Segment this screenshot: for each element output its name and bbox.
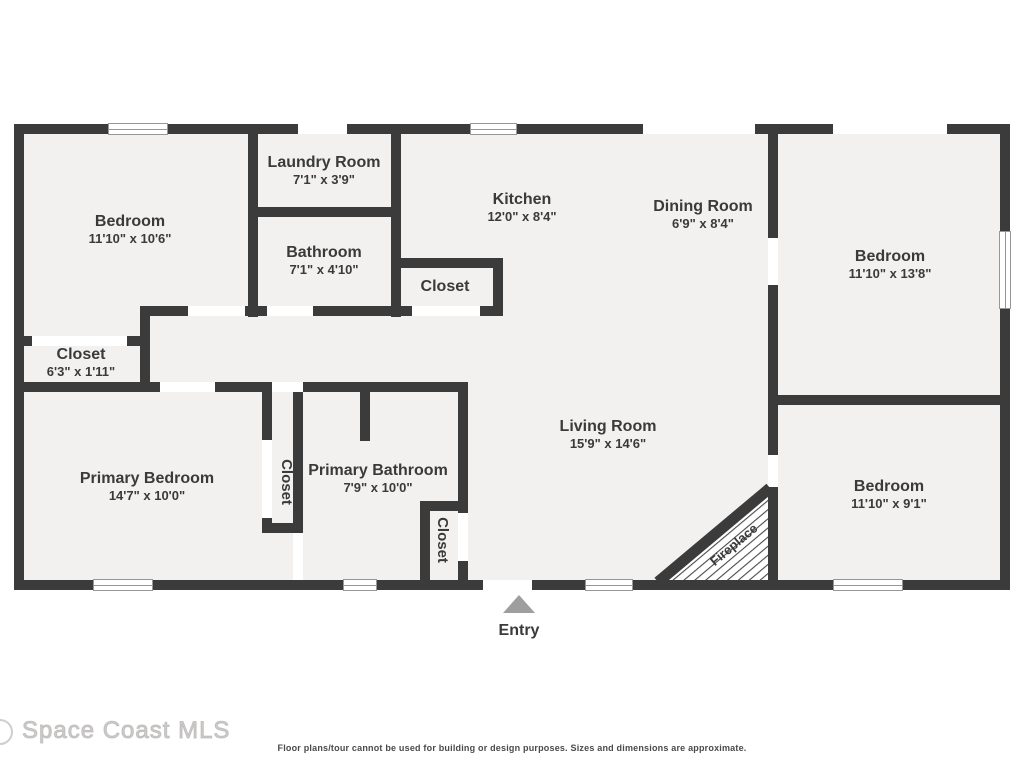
floor-plan-page: Bedroom 11'10" x 10'6" Laundry Room 7'1"… — [0, 0, 1024, 768]
window-bedroomBR-bottom — [833, 579, 903, 591]
wall-bedrooms-right-divider — [768, 395, 1000, 405]
room-name: Bedroom — [851, 478, 927, 496]
window-bedroomTR-right — [999, 231, 1011, 309]
room-dims: 7'1" x 4'10" — [286, 262, 362, 278]
door-closet-hall — [32, 336, 127, 346]
wall-closet-kitchen-right — [493, 268, 503, 316]
opening-laundry-top — [298, 124, 347, 134]
room-label-bedroom-bottom-right: Bedroom 11'10" x 9'1" — [851, 478, 927, 512]
disclaimer-text: Floor plans/tour cannot be used for buil… — [0, 743, 1024, 753]
room-name: Closet — [433, 517, 451, 563]
watermark: Space Coast MLS — [22, 717, 230, 745]
room-dims: 11'10" x 9'1" — [851, 496, 927, 512]
door-bedroomTL — [188, 306, 245, 316]
room-name: Primary Bathroom — [308, 462, 448, 480]
room-name: Kitchen — [487, 191, 556, 209]
room-name: Dining Room — [653, 198, 753, 216]
wall-laundry-bathroom — [258, 207, 391, 217]
door-primary-bedroom — [160, 382, 215, 392]
room-name: Bedroom — [89, 213, 172, 231]
window-bedroomTL-top — [108, 123, 168, 135]
window-living-bottom — [585, 579, 633, 591]
room-dims: 11'10" x 10'6" — [89, 231, 172, 247]
entry-arrow-icon — [503, 595, 535, 613]
wall-exterior-left — [14, 124, 24, 590]
room-name: Primary Bedroom — [80, 470, 214, 488]
door-entry — [483, 580, 532, 590]
room-dims: 7'1" x 3'9" — [268, 172, 381, 188]
room-label-kitchen: Kitchen 12'0" x 8'4" — [487, 191, 556, 225]
door-closet-primary-top — [272, 382, 303, 392]
wall-bathroom-stub — [360, 392, 370, 441]
room-label-laundry-room: Laundry Room 7'1" x 3'9" — [268, 154, 381, 188]
fireplace-hatch — [650, 480, 780, 592]
wall-hallway-bottom — [14, 382, 467, 392]
entry-label: Entry — [499, 622, 540, 640]
room-label-bathroom: Bathroom 7'1" x 4'10" — [286, 244, 362, 278]
wall-exterior-right — [1000, 124, 1010, 590]
door-bedroomTR — [768, 238, 778, 285]
room-dims: 6'9" x 8'4" — [653, 216, 753, 232]
door-closet-kitchen — [412, 306, 480, 316]
room-dims: 6'3" x 1'11" — [47, 364, 115, 380]
room-dims: 14'7" x 10'0" — [80, 488, 214, 504]
room-name: Closet — [421, 278, 470, 296]
room-label-living-room: Living Room 15'9" x 14'6" — [560, 418, 657, 452]
wall-closet-primary-bottom — [262, 523, 303, 533]
door-primary-bathroom — [293, 533, 303, 580]
room-label-closet-primary: Closet — [277, 459, 295, 505]
room-label-bedroom-top-right: Bedroom 11'10" x 13'8" — [849, 248, 932, 282]
room-label-closet-hall: Closet 6'3" x 1'11" — [47, 346, 115, 380]
wall-closet-kitchen-top — [391, 258, 503, 268]
door-closet-entry — [458, 513, 468, 561]
window-primary-bedroom-bottom — [93, 579, 153, 591]
opening-bedroomTR-top — [833, 124, 947, 134]
wall-hall-closet-right — [140, 316, 150, 392]
door-closet-primary-side — [262, 440, 272, 518]
room-name: Closet — [277, 459, 295, 505]
watermark-fragment — [0, 719, 13, 745]
opening-dining-top — [643, 124, 755, 134]
wall-bedroomTL-laundry — [248, 134, 258, 317]
room-label-primary-bedroom: Primary Bedroom 14'7" x 10'0" — [80, 470, 214, 504]
wall-closet-entry-top — [420, 501, 458, 511]
room-dims: 15'9" x 14'6" — [560, 436, 657, 452]
wall-closet-entry-left — [420, 511, 430, 580]
room-label-dining-room: Dining Room 6'9" x 8'4" — [653, 198, 753, 232]
room-name: Bedroom — [849, 248, 932, 266]
room-label-bedroom-top-left: Bedroom 11'10" x 10'6" — [89, 213, 172, 247]
room-dims: 11'10" x 13'8" — [849, 266, 932, 282]
window-primary-bathroom-bottom — [343, 579, 377, 591]
door-bathroom — [267, 306, 313, 316]
window-kitchen-top — [470, 123, 517, 135]
room-name: Bathroom — [286, 244, 362, 262]
room-name: Laundry Room — [268, 154, 381, 172]
room-label-primary-bathroom: Primary Bathroom 7'9" x 10'0" — [308, 462, 448, 496]
room-name: Living Room — [560, 418, 657, 436]
room-dims: 12'0" x 8'4" — [487, 209, 556, 225]
room-label-closet-kitchen: Closet — [421, 278, 470, 296]
room-label-closet-entry: Closet — [433, 517, 451, 563]
room-name: Closet — [47, 346, 115, 364]
wall-laundry-kitchen — [391, 134, 401, 317]
room-dims: 7'9" x 10'0" — [308, 480, 448, 496]
